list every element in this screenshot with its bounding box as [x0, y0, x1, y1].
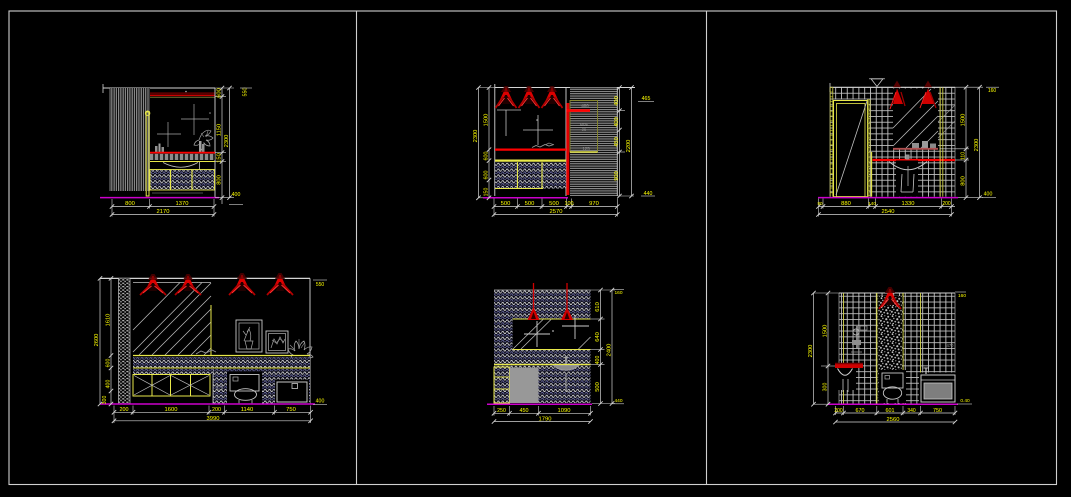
svg-text:800: 800 — [217, 175, 223, 185]
svg-text:1140: 1140 — [241, 407, 253, 413]
svg-text:800: 800 — [125, 201, 135, 207]
svg-text:200: 200 — [120, 407, 129, 413]
svg-text:440: 440 — [614, 398, 622, 404]
svg-text:0.40: 0.40 — [960, 398, 970, 404]
svg-text:400: 400 — [232, 192, 241, 198]
svg-text:340: 340 — [907, 408, 916, 414]
svg-text:2400: 2400 — [607, 344, 613, 357]
svg-text:750: 750 — [933, 408, 942, 414]
svg-text:750: 750 — [286, 407, 296, 413]
svg-text:1500: 1500 — [961, 114, 967, 127]
svg-text:2170: 2170 — [157, 209, 170, 215]
svg-text:150: 150 — [484, 188, 490, 197]
svg-text:110: 110 — [961, 152, 967, 160]
svg-text:400: 400 — [984, 192, 993, 198]
svg-text:1500: 1500 — [484, 114, 490, 127]
svg-text:601: 601 — [886, 408, 895, 414]
svg-text:600: 600 — [484, 171, 490, 180]
svg-text:200: 200 — [942, 201, 951, 207]
svg-text:640: 640 — [595, 332, 601, 342]
svg-text:3990: 3990 — [207, 416, 220, 422]
svg-text:1330: 1330 — [902, 201, 915, 207]
svg-text:200: 200 — [212, 407, 221, 413]
svg-text:400: 400 — [595, 356, 601, 365]
svg-text:1150: 1150 — [217, 124, 223, 136]
svg-text:2300: 2300 — [473, 130, 479, 143]
svg-text:2540: 2540 — [882, 209, 895, 215]
svg-text:500: 500 — [549, 201, 559, 207]
svg-text:150: 150 — [217, 153, 223, 163]
svg-text:400: 400 — [316, 399, 325, 405]
svg-text:600: 600 — [484, 152, 490, 161]
svg-text:250: 250 — [497, 408, 506, 414]
svg-text:2300: 2300 — [808, 345, 814, 358]
svg-text:1610: 1610 — [106, 314, 112, 327]
svg-text:300: 300 — [823, 383, 829, 392]
svg-text:2560: 2560 — [887, 417, 900, 423]
svg-text:1500: 1500 — [823, 325, 829, 338]
svg-text:900: 900 — [614, 171, 620, 181]
svg-text:550: 550 — [316, 282, 325, 288]
svg-text:465: 465 — [642, 96, 651, 102]
svg-text:2300: 2300 — [224, 135, 230, 148]
svg-text:160: 160 — [958, 293, 966, 299]
svg-text:2600: 2600 — [94, 334, 100, 347]
svg-text:125: 125 — [582, 146, 590, 151]
svg-text:500: 500 — [525, 201, 535, 207]
svg-text:600: 600 — [217, 88, 223, 98]
svg-text:470: 470 — [947, 343, 955, 348]
svg-text:670: 670 — [856, 408, 865, 414]
svg-text:2570: 2570 — [550, 209, 563, 215]
svg-text:200: 200 — [834, 408, 843, 414]
svg-text:400: 400 — [614, 96, 620, 106]
svg-text:160: 160 — [614, 290, 622, 296]
svg-text:300: 300 — [102, 396, 108, 405]
svg-text:600: 600 — [106, 359, 112, 368]
svg-text:500: 500 — [595, 382, 601, 392]
svg-text:100: 100 — [565, 201, 574, 207]
svg-text:400: 400 — [581, 103, 589, 108]
svg-text:500: 500 — [501, 201, 511, 207]
svg-text:1600: 1600 — [165, 407, 178, 413]
svg-text:140: 140 — [868, 201, 876, 207]
svg-text:25: 25 — [582, 127, 587, 132]
svg-text:880: 880 — [841, 201, 851, 207]
svg-text:400: 400 — [106, 380, 112, 389]
svg-text:550: 550 — [243, 88, 249, 97]
svg-text:400: 400 — [614, 117, 620, 127]
svg-text:970: 970 — [589, 201, 599, 207]
svg-text:2300: 2300 — [974, 139, 980, 152]
svg-text:450: 450 — [520, 408, 529, 414]
svg-text:1370: 1370 — [176, 201, 189, 207]
svg-text:610: 610 — [595, 302, 601, 312]
svg-text:80: 80 — [817, 201, 823, 206]
svg-text:1090: 1090 — [558, 408, 571, 414]
svg-text:800: 800 — [961, 176, 967, 186]
svg-text:1790: 1790 — [539, 417, 552, 423]
svg-text:160: 160 — [988, 88, 997, 94]
svg-text:450: 450 — [614, 137, 620, 147]
svg-text:2200: 2200 — [626, 140, 632, 153]
